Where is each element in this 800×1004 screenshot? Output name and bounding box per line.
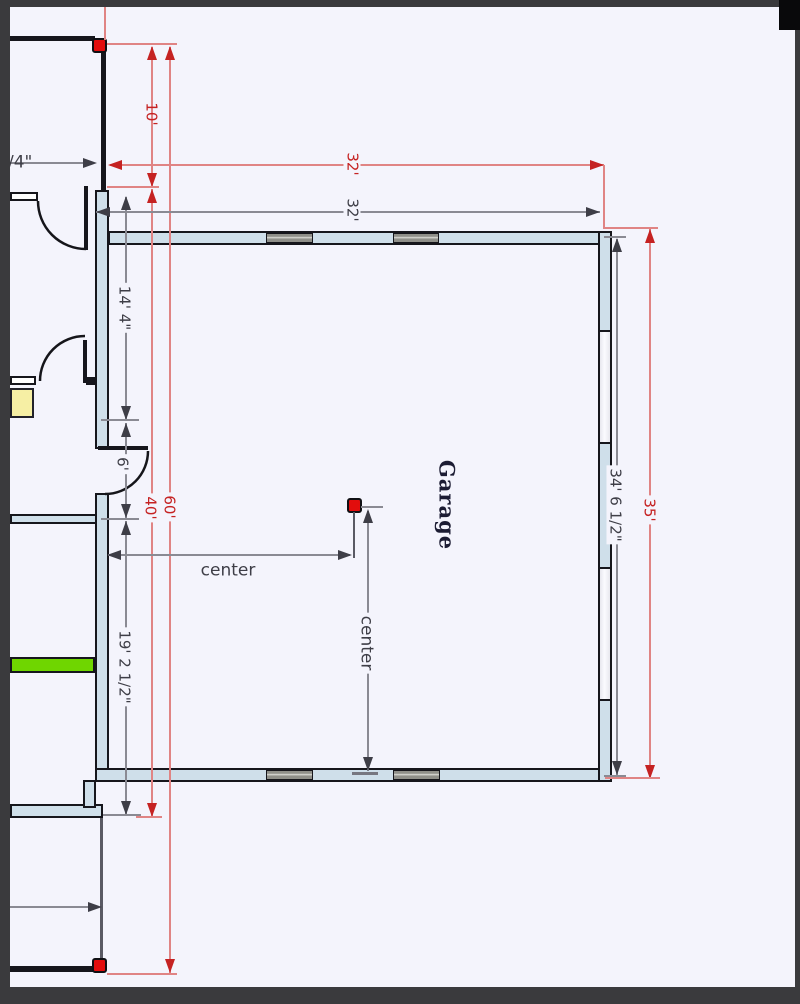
arrow-up-35ft bbox=[645, 229, 655, 243]
dim-line-center-horizontal[interactable] bbox=[108, 554, 350, 556]
arrow-up-6ft bbox=[121, 423, 131, 437]
bottom-wall-window-1[interactable] bbox=[266, 770, 313, 780]
marker-extension-line bbox=[353, 512, 355, 558]
dimension-label-center-horizontal[interactable]: center bbox=[201, 563, 256, 580]
frame-top bbox=[0, 0, 800, 7]
arrow-up-10ft bbox=[147, 46, 157, 60]
right-wall-window-1[interactable] bbox=[600, 330, 610, 444]
arrow-down-10ft bbox=[147, 173, 157, 187]
arrow-up-center-v bbox=[363, 509, 373, 523]
arrow-right-32ft-gray bbox=[586, 207, 600, 217]
arrow-down-34ft6 bbox=[612, 761, 622, 775]
arrow-right-partial bbox=[83, 158, 97, 168]
house-right-wall-upper[interactable] bbox=[101, 41, 106, 196]
arrow-up-34ft6 bbox=[612, 238, 622, 252]
corner-marker-bottom[interactable] bbox=[92, 958, 107, 973]
garage-door-leaf[interactable] bbox=[98, 446, 148, 450]
arrow-right-32ft-red bbox=[590, 160, 604, 170]
arrow-right-lower-partial bbox=[88, 902, 102, 912]
house-mid-wall[interactable] bbox=[10, 514, 97, 524]
gray-tick-520 bbox=[101, 518, 139, 520]
arrow-left-center-h bbox=[107, 550, 121, 560]
selected-wall-highlight[interactable] bbox=[10, 657, 95, 673]
dimension-label-19ft[interactable]: 19' 2 1/2" bbox=[116, 627, 133, 706]
bottom-wall-window-2[interactable] bbox=[393, 770, 440, 780]
gray-tick-marker bbox=[361, 506, 383, 508]
dimension-label-center-vertical[interactable]: center bbox=[357, 613, 376, 674]
frame-corner-notch bbox=[779, 0, 800, 30]
arrow-left-32ft-red bbox=[108, 160, 122, 170]
plan-canvas bbox=[0, 0, 800, 1004]
top-wall-window-2[interactable] bbox=[393, 233, 439, 243]
room-label-garage[interactable]: Garage bbox=[435, 460, 460, 550]
arrow-down-center-v bbox=[363, 757, 373, 771]
dimension-label-partial[interactable]: /4" bbox=[8, 155, 32, 172]
top-wall-window-1[interactable] bbox=[266, 233, 313, 243]
red-tick-bottom bbox=[107, 973, 177, 975]
dim-line-lower-partial[interactable] bbox=[10, 906, 90, 908]
red-extension-line-top[interactable] bbox=[104, 7, 106, 40]
frame-left bbox=[0, 0, 10, 1004]
dimension-label-10ft[interactable]: 10' bbox=[144, 102, 159, 125]
dimension-label-14ft4[interactable]: 14' 4" bbox=[116, 283, 133, 333]
arrow-down-60ft bbox=[165, 959, 175, 973]
house-top-wall[interactable] bbox=[10, 36, 95, 41]
arrow-up-19ft bbox=[121, 521, 131, 535]
red-tick-40ft-bottom bbox=[136, 816, 162, 818]
garage-left-wall-upper[interactable] bbox=[95, 190, 109, 449]
cabinet-fixture[interactable] bbox=[10, 388, 34, 418]
red-extension-line-right bbox=[603, 165, 605, 229]
arrow-left-32ft-gray bbox=[96, 207, 110, 217]
gray-tick-815 bbox=[103, 814, 141, 816]
arrow-right-center-h bbox=[338, 550, 352, 560]
arrow-up-60ft bbox=[165, 46, 175, 60]
gray-tick-776 bbox=[604, 775, 626, 777]
arrow-down-40ft bbox=[147, 803, 157, 817]
gray-tick-422 bbox=[101, 419, 139, 421]
garage-left-wall-lower[interactable] bbox=[95, 493, 109, 770]
center-point-marker[interactable] bbox=[347, 498, 362, 513]
house-stub-wall[interactable] bbox=[83, 780, 96, 808]
corner-marker-top[interactable] bbox=[92, 38, 107, 53]
house-right-wall-lower[interactable] bbox=[100, 818, 103, 968]
frame-bottom bbox=[0, 987, 800, 1004]
red-tick-mid bbox=[107, 186, 159, 188]
house-door1-jamb-wall[interactable] bbox=[10, 192, 38, 201]
dimension-label-60ft[interactable]: 60' bbox=[161, 492, 178, 521]
arrow-up-40ft bbox=[147, 189, 157, 203]
dimension-label-32ft-gray[interactable]: 32' bbox=[344, 195, 361, 224]
red-tick-top bbox=[107, 43, 177, 45]
frame-right bbox=[795, 0, 800, 1004]
floorplan-screenshot: { "plan": { "room_label": "Garage", "lab… bbox=[0, 0, 800, 1004]
arrow-down-19ft bbox=[121, 801, 131, 815]
dimension-label-34ft6[interactable]: 34' 6 1/2" bbox=[607, 465, 624, 544]
arrow-down-14ft4 bbox=[121, 406, 131, 420]
dimension-label-32ft-red[interactable]: 32' bbox=[344, 149, 361, 178]
garage-bottom-wall[interactable] bbox=[95, 768, 612, 782]
garage-top-wall[interactable] bbox=[108, 231, 612, 245]
bottom-wall-center-tick bbox=[352, 772, 378, 775]
dimension-label-6ft[interactable]: 6' bbox=[114, 454, 131, 474]
gray-tick-237 bbox=[604, 236, 626, 238]
arrow-up-14ft4 bbox=[121, 196, 131, 210]
arrow-down-6ft bbox=[121, 504, 131, 518]
door1-leaf[interactable] bbox=[84, 186, 88, 250]
dimension-label-35ft[interactable]: 35' bbox=[641, 495, 658, 524]
right-wall-window-2[interactable] bbox=[600, 567, 610, 701]
house-door2-jamb-wall[interactable] bbox=[10, 376, 36, 385]
dimension-label-40ft[interactable]: 40' bbox=[142, 493, 159, 522]
red-tick-35ft-bottom bbox=[605, 777, 660, 779]
